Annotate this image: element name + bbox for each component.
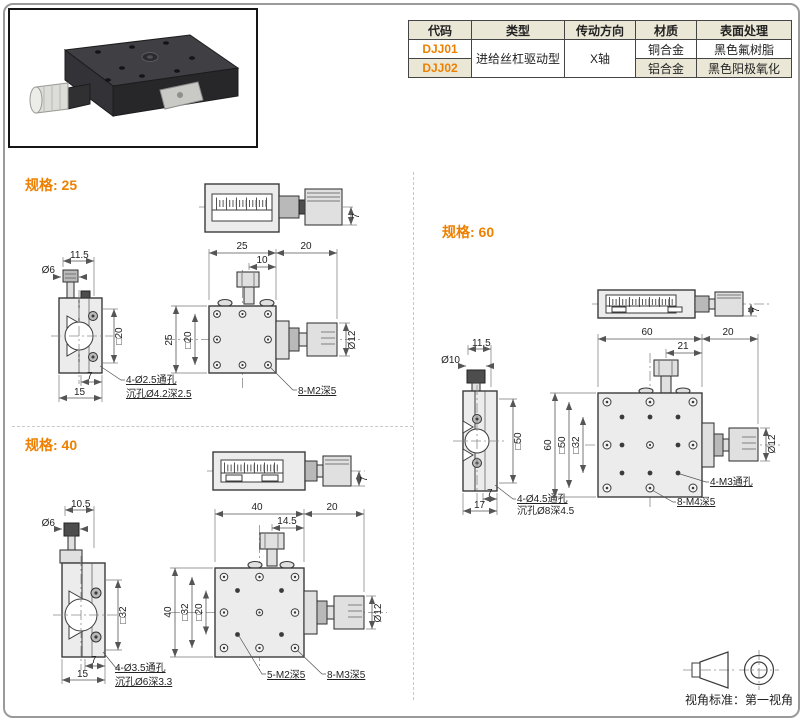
dim-square-outer: □20 xyxy=(183,331,194,349)
dim-width: 60 xyxy=(641,327,653,338)
dim-stem-height: 7 xyxy=(351,213,362,219)
spec-40-section: 规格: 40 7 10.5 Ø6 xyxy=(15,430,413,702)
dim-base-width: 15 xyxy=(77,669,89,680)
dim-square: □50 xyxy=(513,432,524,450)
col-direction: 传动方向 xyxy=(565,21,636,40)
dim-stem-height: 7 xyxy=(359,476,370,482)
dim-knob-dia: Ø12 xyxy=(767,434,778,453)
col-type: 类型 xyxy=(472,21,565,40)
first-angle-symbol-circles xyxy=(739,650,779,690)
section-label: 规格: 40 xyxy=(25,437,77,453)
note-outer-holes: 8-M3深5 xyxy=(327,669,366,681)
dim-knob-len: 20 xyxy=(722,327,734,338)
dim-step: 7 xyxy=(91,655,97,666)
dim-square: □20 xyxy=(114,327,125,345)
note-through-holes: 4-M3通孔 xyxy=(710,476,753,488)
catalog-page: 代码 类型 传动方向 材质 表面处理 DJJ01 进给丝杠驱动型 X轴 铜合金 … xyxy=(0,0,802,720)
note-counterbore: 沉孔Ø6深3.3 xyxy=(115,675,173,688)
spec25-front-view: 25 20 10 25 □20 Ø12 8-M2深5 xyxy=(164,241,360,397)
note-through-holes: 4-Ø4.5通孔 xyxy=(517,493,568,505)
spec25-side-view: 11.5 Ø6 □20 7 15 4-Ø2.5通孔 xyxy=(42,250,192,402)
note-through-holes: 4-Ø2.5通孔 xyxy=(126,374,177,386)
spec-25-section: 规格: 25 7 11.5 Ø6 xyxy=(15,170,410,422)
note-through-holes: 4-Ø3.5通孔 xyxy=(115,662,166,674)
dim-clamp-offset: 21 xyxy=(677,341,689,352)
col-finish: 表面处理 xyxy=(697,21,792,40)
view-standard: 视角标准：第一视角 xyxy=(655,638,795,708)
dim-base-width: 15 xyxy=(74,387,86,398)
dim-knob-dia: Ø12 xyxy=(373,603,384,622)
table-row: DJJ01 进给丝杠驱动型 X轴 铜合金 黑色氟树脂 xyxy=(409,40,792,59)
dim-base-width: 17 xyxy=(474,500,486,511)
code-cell: DJJ02 xyxy=(409,59,472,78)
dim-knob-dia: Ø6 xyxy=(42,265,56,276)
dim-width: 25 xyxy=(236,241,248,252)
spec40-front-view: 40 20 14.5 40 □32 □20 Ø12 5-M2深5 8-M3深5 xyxy=(163,502,387,681)
dim-clamp-offset: 10 xyxy=(256,255,268,266)
view-standard-label: 视角标准：第一视角 xyxy=(685,692,793,707)
dim-square-outer: □50 xyxy=(557,436,568,454)
table-header-row: 代码 类型 传动方向 材质 表面处理 xyxy=(409,21,792,40)
spec25-top-view: 7 xyxy=(199,184,362,232)
direction-cell: X轴 xyxy=(565,40,636,78)
material-cell: 铝合金 xyxy=(636,59,697,78)
dim-step: 7 xyxy=(487,488,493,499)
material-cell: 铜合金 xyxy=(636,40,697,59)
product-photo xyxy=(8,8,258,148)
section-label: 规格: 60 xyxy=(442,224,494,240)
dim-width: 40 xyxy=(251,502,263,513)
dim-knob-dia: Ø10 xyxy=(441,355,460,366)
col-material: 材质 xyxy=(636,21,697,40)
spec-table: 代码 类型 传动方向 材质 表面处理 DJJ01 进给丝杠驱动型 X轴 铜合金 … xyxy=(408,20,792,78)
note-counterbore: 沉孔Ø8深4.5 xyxy=(517,504,575,515)
dim-knob-dia: Ø12 xyxy=(347,330,358,349)
spec60-top-view: 7 xyxy=(592,290,770,318)
code-cell: DJJ01 xyxy=(409,40,472,59)
finish-cell: 黑色阳极氧化 xyxy=(697,59,792,78)
finish-cell: 黑色氟树脂 xyxy=(697,40,792,59)
dim-top-offset: 10.5 xyxy=(71,499,91,510)
dim-square: □32 xyxy=(118,606,129,624)
dim-knob-len: 20 xyxy=(300,241,312,252)
dim-stem-height: 7 xyxy=(751,307,762,313)
dim-clamp-offset: 14.5 xyxy=(277,516,297,527)
note-tapped-holes: 8-M2深5 xyxy=(298,385,337,397)
note-tapped-holes: 8-M4深5 xyxy=(677,496,716,508)
dim-height: 25 xyxy=(164,334,175,346)
dim-height: 40 xyxy=(163,606,174,618)
dim-step: 7 xyxy=(87,371,93,382)
dim-square-inner: □20 xyxy=(194,603,205,621)
horizontal-divider xyxy=(12,426,413,427)
dim-square-outer: □32 xyxy=(180,603,191,621)
dim-knob-len: 20 xyxy=(326,502,338,513)
section-label: 规格: 25 xyxy=(25,177,77,193)
dim-square-inner: □32 xyxy=(571,436,582,454)
col-code: 代码 xyxy=(409,21,472,40)
spec40-top-view: 7 xyxy=(207,452,370,490)
type-cell: 进给丝杠驱动型 xyxy=(472,40,565,78)
spec-60-section: 规格: 60 7 11.5 Ø10 xyxy=(425,215,795,515)
note-counterbore: 沉孔Ø4.2深2.5 xyxy=(126,387,192,400)
vertical-divider xyxy=(413,172,414,700)
stage-photo-illustration xyxy=(10,10,256,146)
dim-top-offset: 11.5 xyxy=(472,338,491,349)
dim-knob-dia: Ø6 xyxy=(42,518,56,529)
note-inner-holes: 5-M2深5 xyxy=(267,669,306,681)
dim-top-offset: 11.5 xyxy=(70,250,89,261)
spec60-front-view: 60 20 21 60 □50 □32 Ø12 4-M3通孔 8-M4深5 xyxy=(543,327,783,509)
spec40-side-view: 10.5 Ø6 □32 7 15 4-Ø3.5通孔 沉孔Ø6深 xyxy=(42,499,173,688)
dim-height: 60 xyxy=(543,439,554,451)
first-angle-symbol-cone xyxy=(683,652,737,688)
